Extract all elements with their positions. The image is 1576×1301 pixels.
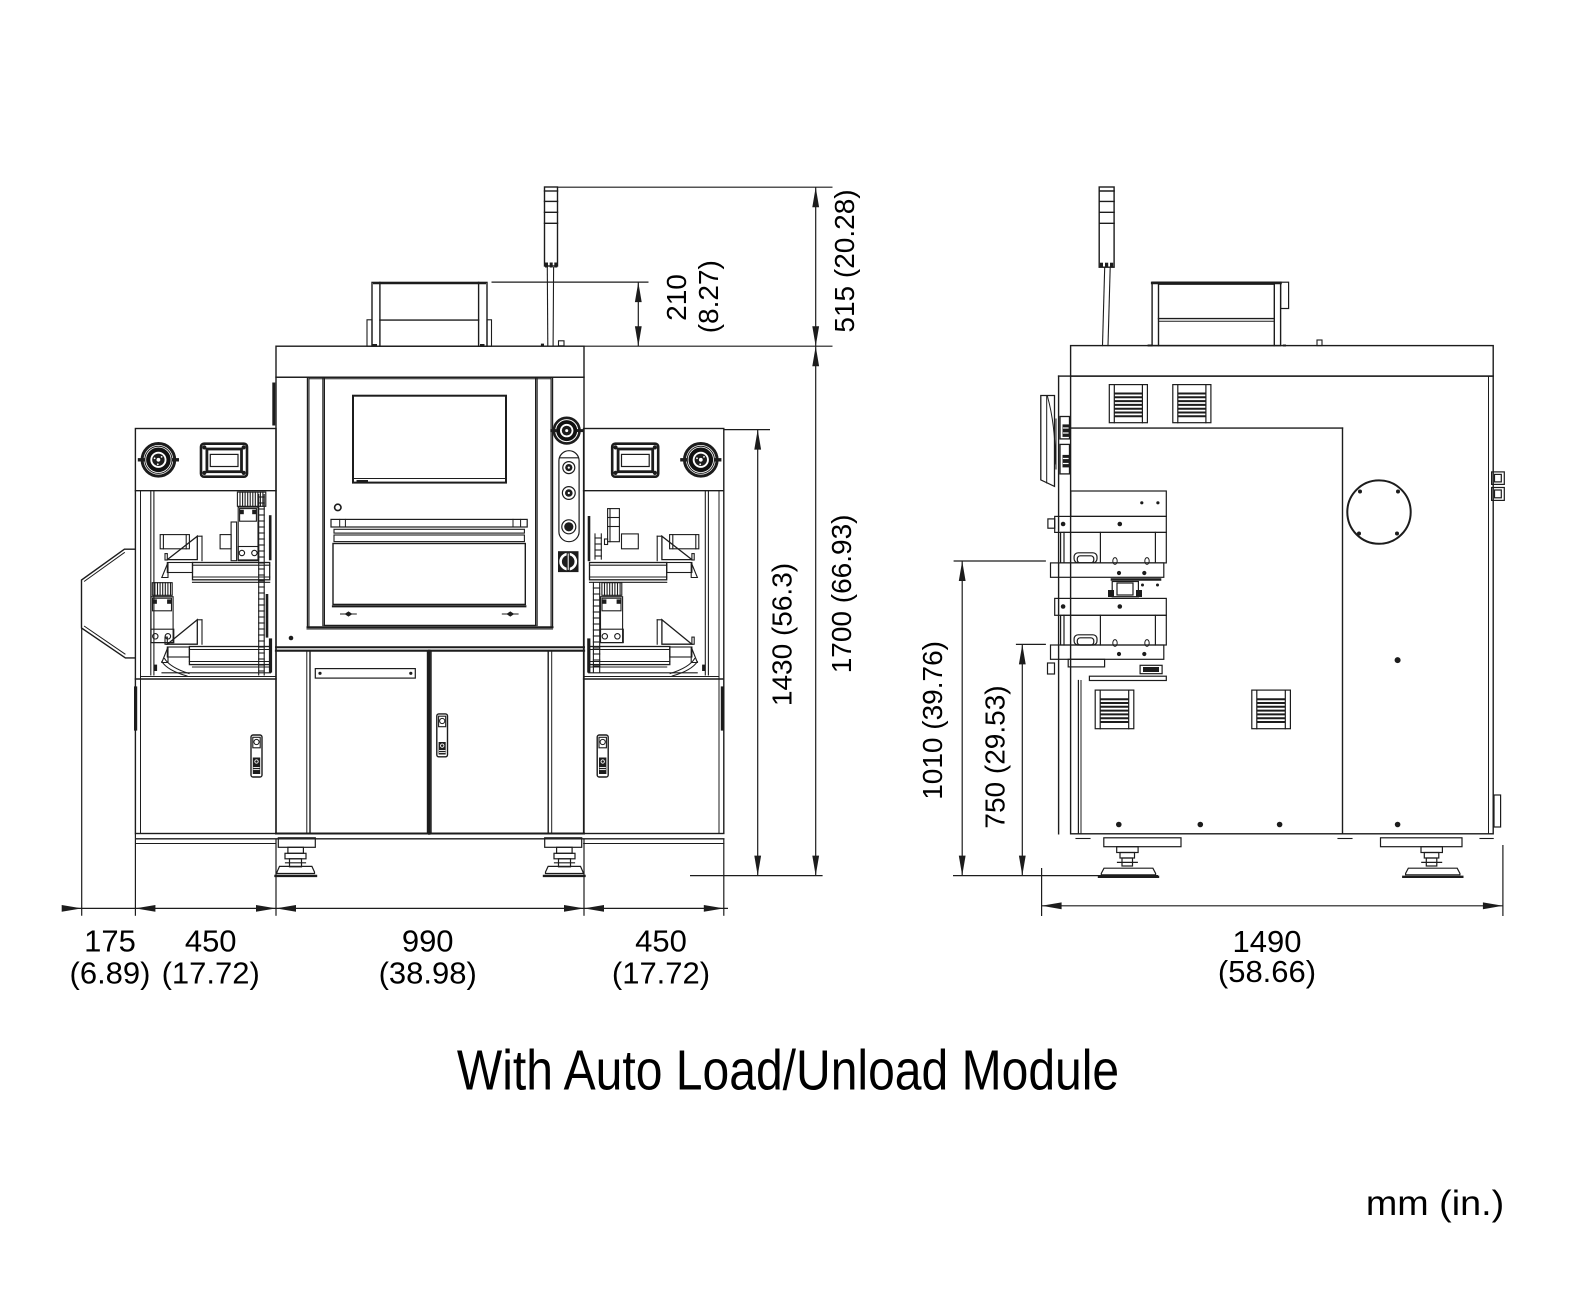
svg-text:515 (20.28): 515 (20.28) — [829, 189, 860, 332]
svg-text:(38.98): (38.98) — [379, 956, 477, 991]
svg-text:450: 450 — [185, 924, 237, 959]
svg-text:(17.72): (17.72) — [162, 956, 260, 991]
svg-text:1430 (56.3): 1430 (56.3) — [767, 563, 798, 706]
svg-text:(8.27): (8.27) — [693, 260, 724, 333]
svg-text:With Auto Load/Unload Module: With Auto Load/Unload Module — [457, 1039, 1119, 1103]
svg-text:450: 450 — [635, 924, 687, 959]
svg-text:mm (in.): mm (in.) — [1366, 1183, 1504, 1222]
svg-text:1700 (66.93): 1700 (66.93) — [826, 515, 857, 674]
svg-text:(58.66): (58.66) — [1218, 954, 1316, 989]
svg-text:750 (29.53): 750 (29.53) — [979, 685, 1010, 828]
svg-text:175: 175 — [84, 924, 136, 959]
svg-text:990: 990 — [402, 924, 454, 959]
svg-text:210: 210 — [661, 274, 692, 321]
svg-text:1010 (39.76): 1010 (39.76) — [917, 641, 948, 800]
svg-text:(6.89): (6.89) — [70, 956, 151, 991]
svg-text:(17.72): (17.72) — [612, 956, 710, 991]
